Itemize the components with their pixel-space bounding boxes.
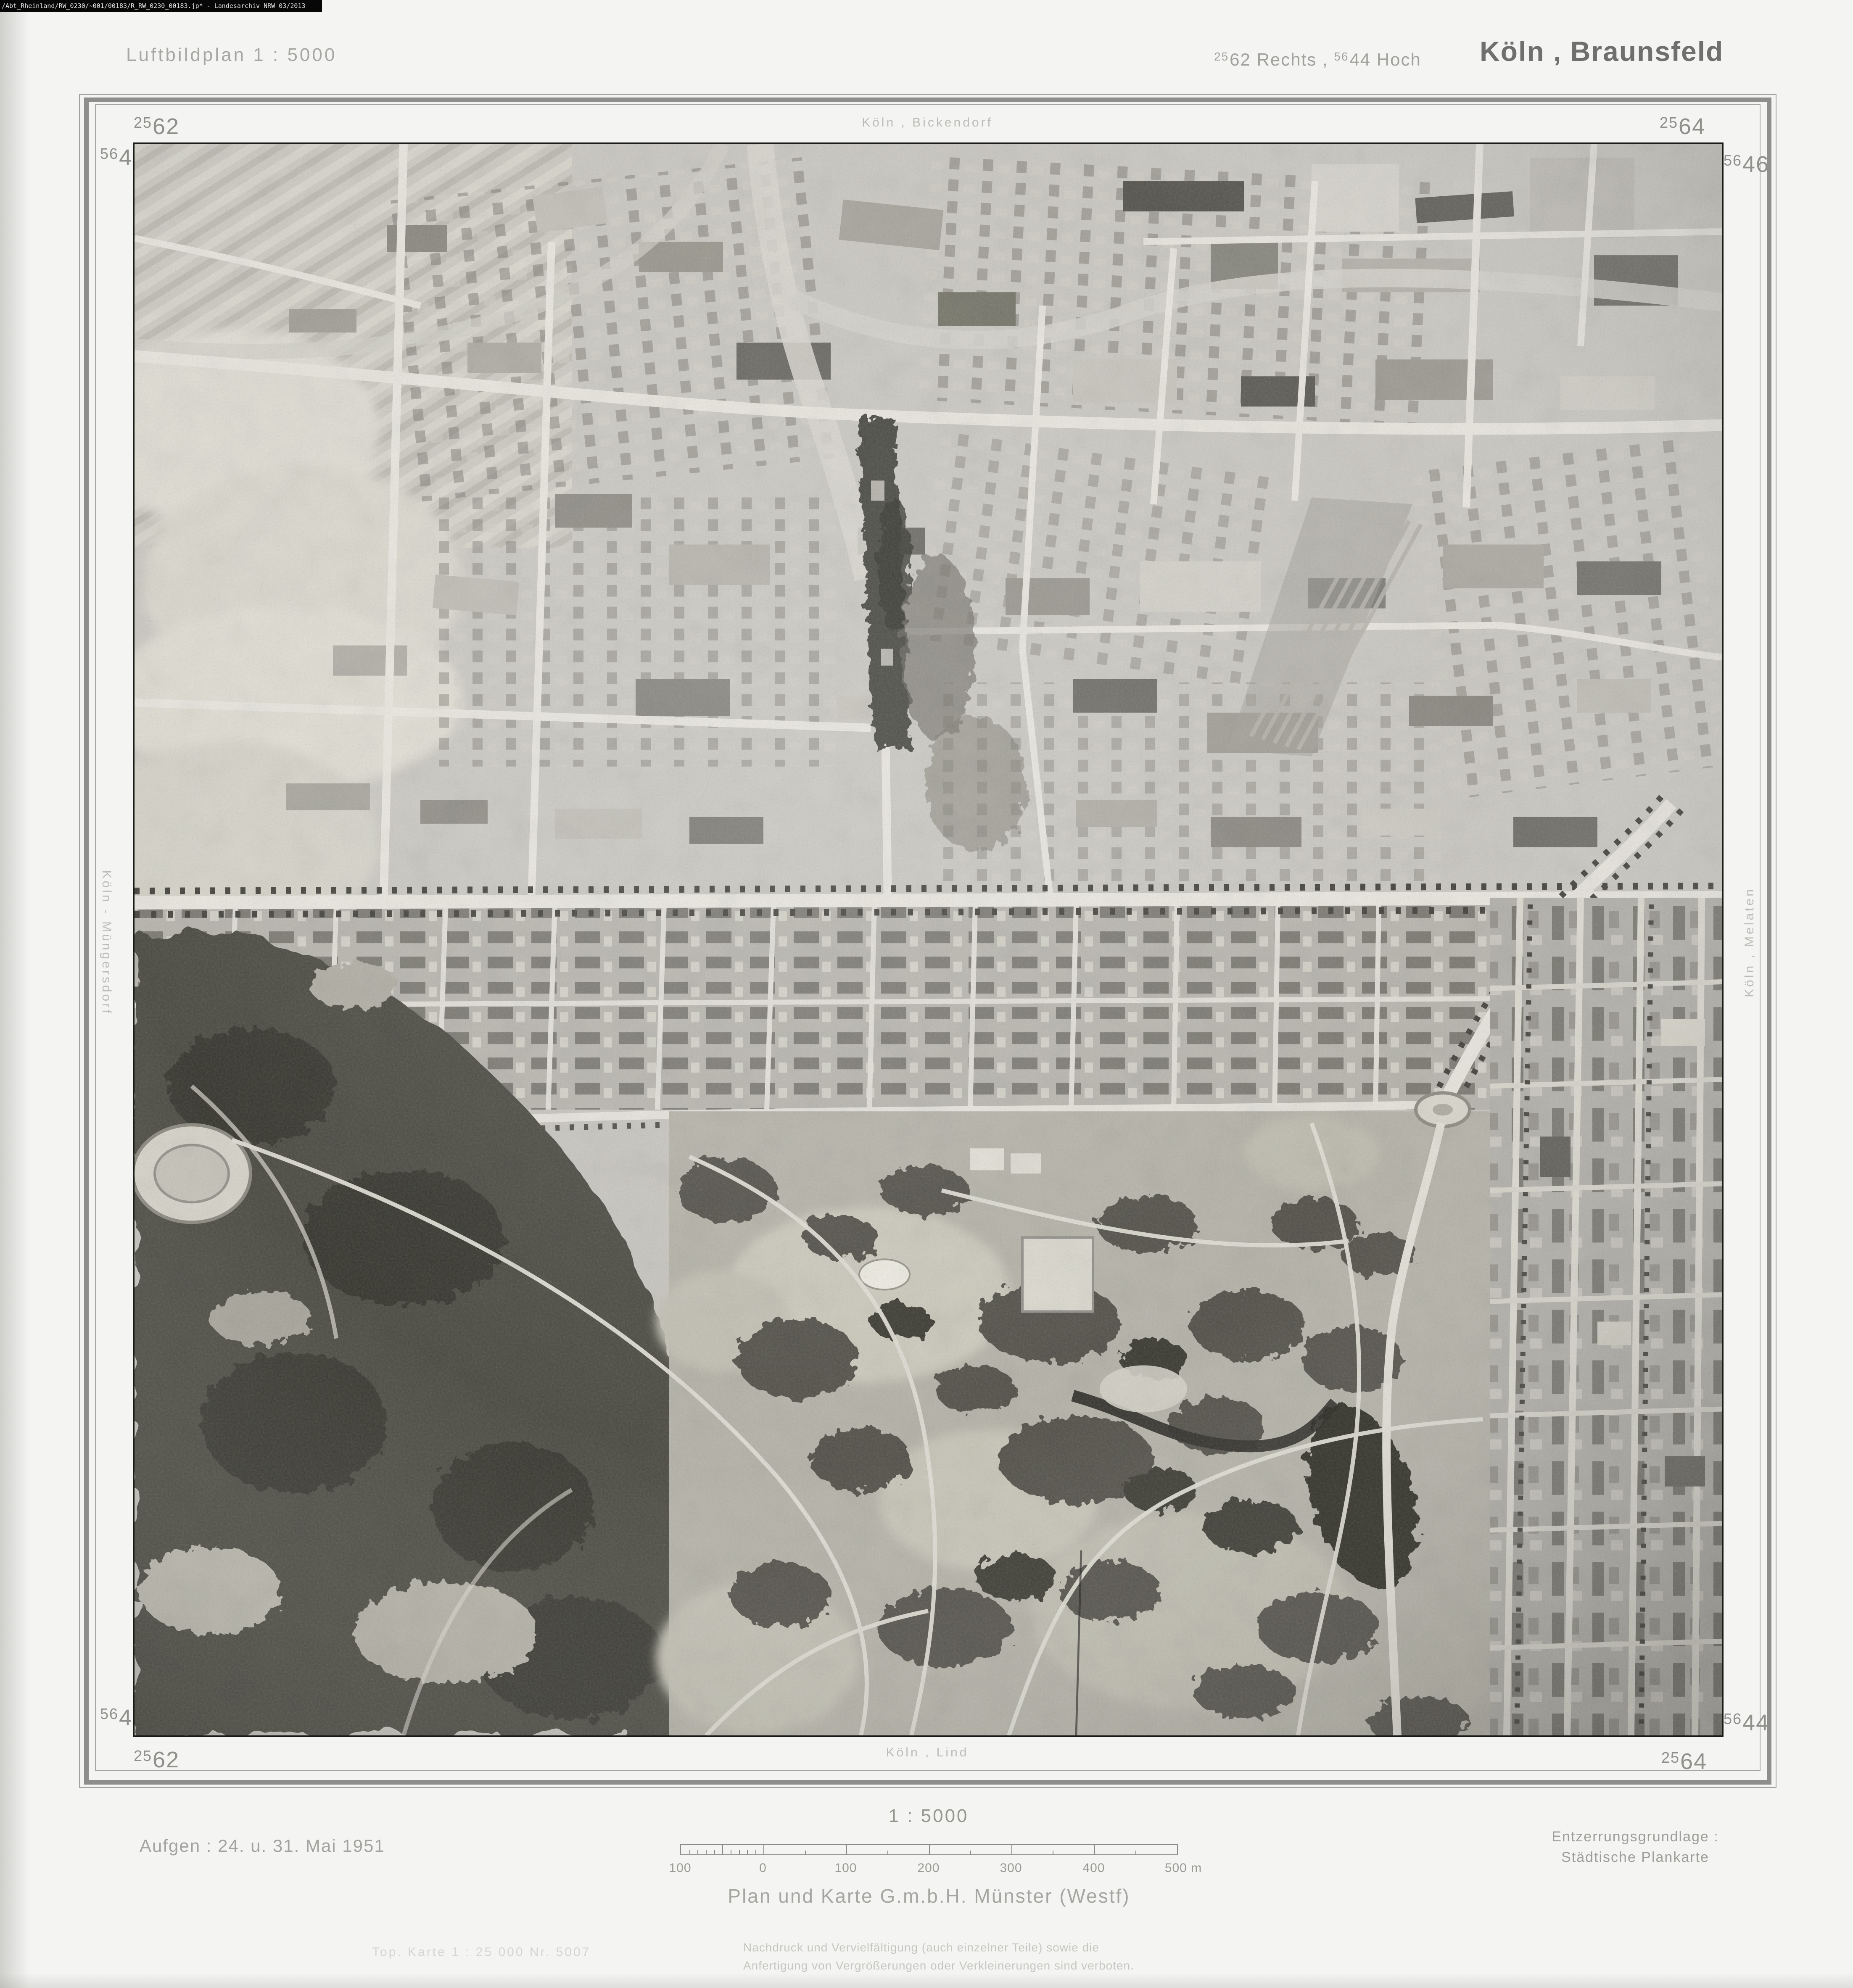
scale-label-100-left: 100	[669, 1861, 691, 1875]
aerial-photo-rendering	[135, 144, 1722, 1735]
aerial-photo	[133, 142, 1724, 1737]
scale-label-500m: 500 m	[1165, 1861, 1202, 1875]
scale-bar-minor-tick	[755, 1850, 756, 1854]
scale-bar-minor-tick	[689, 1850, 690, 1854]
grid-coord-main: 62	[153, 114, 179, 139]
scale-bar-tick	[1094, 1845, 1095, 1854]
coord-word-rechts: Rechts ,	[1257, 50, 1328, 69]
scale-bar-minor-tick	[714, 1850, 715, 1854]
survey-date: Aufgen : 24. u. 31. Mai 1951	[140, 1836, 385, 1856]
rectification-note-line1: Entzerrungsgrundlage :	[1539, 1827, 1732, 1847]
scale-bar-tick	[846, 1845, 847, 1854]
scale-label-100: 100	[834, 1861, 857, 1875]
grid-coord-main: 62	[153, 1747, 179, 1772]
grid-coord-main: 44	[1742, 1710, 1769, 1735]
grid-coord-top-right-x: 2564	[1660, 113, 1705, 140]
scale-label-0: 0	[759, 1861, 767, 1875]
grid-coord-sup: 25	[1661, 1749, 1680, 1766]
coord-main-rechts: 62	[1230, 50, 1251, 69]
scale-bar-mid-tick	[722, 1845, 723, 1854]
scale-bar-half-tick	[805, 1851, 806, 1854]
adjacent-sheet-label-east: Köln , Melaten	[1742, 887, 1757, 997]
coord-sup-hoch: 56	[1334, 50, 1349, 63]
grid-coord-bottom-left-x: 2562	[134, 1747, 179, 1773]
scale-ratio: 1 : 5000	[888, 1806, 969, 1827]
copyright-note: Nachdruck und Vervielfältigung (auch ein…	[743, 1938, 1147, 1975]
scale-bar-minor-tick	[739, 1850, 740, 1854]
scale-bar-minor-tick	[697, 1850, 698, 1854]
grid-coord-bottom-right-x: 2564	[1661, 1748, 1707, 1774]
scale-bar-half-tick	[1053, 1851, 1053, 1854]
adjacent-sheet-label-north: Köln , Bickendorf	[862, 116, 993, 130]
scale-bar-minor-tick	[747, 1850, 748, 1854]
scale-bar-tick	[929, 1845, 930, 1854]
grid-coord-sup: 25	[1660, 114, 1678, 131]
topo-map-reference: Top. Karte 1 : 25 000 Nr. 5007	[372, 1945, 591, 1959]
scale-bar-minor-tick	[706, 1850, 707, 1854]
coord-main-hoch: 44	[1349, 50, 1371, 69]
grid-coord-sup: 25	[134, 114, 152, 131]
coord-word-hoch: Hoch	[1377, 50, 1421, 69]
sheet-title: Köln , Braunsfeld	[1480, 35, 1724, 67]
grid-coord-right-top-y: 5646	[1724, 151, 1769, 177]
grid-coord-sup: 25	[134, 1747, 152, 1764]
header-grid-coordinates: 2562 Rechts , 5644 Hoch	[1214, 50, 1421, 70]
grid-coord-main: 64	[1679, 114, 1705, 139]
grid-coord-main: 46	[1742, 152, 1769, 177]
scale-bar-half-tick	[970, 1851, 971, 1854]
scale-label-400: 400	[1082, 1861, 1105, 1875]
archive-path-bar: /Abt_Rheinland/RW_0230/~001/00183/R_RW_0…	[0, 0, 322, 12]
copyright-line1: Nachdruck und Vervielfältigung (auch ein…	[743, 1938, 1147, 1956]
adjacent-sheet-label-south: Köln , Lind	[886, 1745, 969, 1760]
scale-label-300: 300	[1000, 1861, 1022, 1875]
coord-sup-rechts: 25	[1214, 50, 1229, 63]
scale-bar-half-tick	[887, 1851, 888, 1854]
rectification-note: Entzerrungsgrundlage : Städtische Planka…	[1539, 1827, 1732, 1868]
grid-coord-sup: 56	[1724, 152, 1742, 169]
rectification-note-line2: Städtische Plankarte	[1539, 1847, 1732, 1868]
grid-coord-top-left-x: 2562	[134, 113, 179, 140]
grid-coord-sup: 56	[100, 1705, 119, 1722]
scale-label-200: 200	[917, 1861, 940, 1875]
scale-bar-tick	[763, 1845, 764, 1854]
archive-path-text: /Abt_Rheinland/RW_0230/~001/00183/R_RW_0…	[2, 2, 305, 10]
scale-bar-minor-tick	[731, 1850, 731, 1854]
grid-coord-sup: 56	[100, 145, 119, 162]
grid-coord-right-bottom-y: 5644	[1724, 1710, 1769, 1736]
adjacent-sheet-label-west: Köln - Müngersdorf	[99, 870, 114, 1015]
publisher-imprint: Plan und Karte G.m.b.H. Münster (Westf)	[715, 1885, 1143, 1907]
grid-coord-main: 64	[1680, 1749, 1707, 1774]
photo-grain	[135, 144, 1722, 1735]
grid-coord-sup: 56	[1724, 1710, 1742, 1727]
plan-scale-title: Luftbildplan 1 : 5000	[126, 45, 337, 66]
scale-bar	[680, 1844, 1178, 1855]
scale-bar-half-tick	[1135, 1851, 1136, 1854]
scan-shadow-bottom	[0, 1973, 1853, 1988]
copyright-line2: Anfertigung von Vergrößerungen oder Verk…	[743, 1956, 1147, 1975]
scale-bar-tick	[1011, 1845, 1012, 1854]
map-sheet: /Abt_Rheinland/RW_0230/~001/00183/R_RW_0…	[0, 0, 1853, 1988]
scan-shadow-left	[0, 0, 29, 1988]
